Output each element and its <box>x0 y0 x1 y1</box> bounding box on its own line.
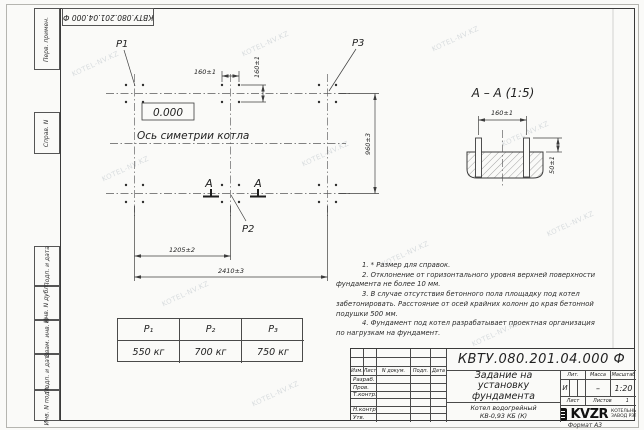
load-table-value: 750 кг <box>242 341 304 363</box>
tb-row-utv: Утв. <box>351 414 377 422</box>
tb-logo-cell: KVZR КОТЕЛЬНЫЙ ЗАВОД РЭП <box>561 406 636 422</box>
load-table: P₁ P₂ P₃ 550 кг 700 кг 750 кг <box>117 318 303 362</box>
tb-row-prov: Пров. <box>351 384 377 392</box>
tb-scale-label: Масштаб <box>611 371 636 380</box>
tb-mass-label: Масса <box>586 371 611 380</box>
section-dim-50: 50±1 <box>548 156 556 174</box>
tb-col-data: Дата <box>431 367 447 376</box>
note-line: подушки 500 мм. <box>336 310 624 320</box>
tb-col-ndoc: N докум. <box>377 367 411 376</box>
section-letter-left: А <box>204 177 213 190</box>
symmetry-axis-label: Ось симетрии котла <box>137 130 249 142</box>
tb-col-list: Лист <box>364 367 377 376</box>
note-line: 4. Фундамент под котел разрабатывает про… <box>336 319 624 329</box>
section-view-title: А – А (1:5) <box>471 86 535 100</box>
tb-sheets-value: 1 <box>626 398 629 404</box>
kvzr-logo-emblem-icon <box>561 408 567 421</box>
tb-scale-value: 1:20 <box>611 380 636 397</box>
note-line: по нагрузкам на фундамент. <box>336 329 624 339</box>
dim-1205: 1205±2 <box>169 246 195 254</box>
dim-960: 960±3 <box>364 133 372 155</box>
load-table-header: P₂ <box>180 319 242 341</box>
tb-sheets-cell: Листов 1 <box>586 397 636 406</box>
tb-row-blank <box>351 399 377 407</box>
title-block: Изм. Лист N докум. Подп. Дата Разраб. Пр… <box>350 348 635 421</box>
section-dimension-lines <box>479 116 563 152</box>
elevation-value: 0.000 <box>153 107 183 119</box>
tb-product-line: Котел водогрейный <box>470 405 536 413</box>
note-line: фундамента не более 10 мм. <box>336 280 624 290</box>
anchor-bolt-left <box>476 138 482 177</box>
load-point-p2-label: P2 <box>242 224 254 235</box>
tb-doc-number: КВТУ.080.201.04.000 Ф <box>447 349 636 371</box>
note-line: забетонировать. Расстояние от осей крайн… <box>336 300 624 310</box>
anchor-bolt-right <box>524 138 530 177</box>
kvzr-logo-subtitle: КОТЕЛЬНЫЙ ЗАВОД РЭП <box>611 409 636 419</box>
tb-row-tkontr: Т.контр. <box>351 392 377 399</box>
tb-drawing-title: Задание на установку фундамента <box>447 371 561 403</box>
load-point-p1-label: P1 <box>116 39 128 50</box>
load-table-value: 550 кг <box>118 341 180 363</box>
load-table-header: P₃ <box>242 319 304 341</box>
note-line: 1. * Размер для справок. <box>336 261 624 271</box>
note-line: 2. Отклонение от горизонтального уровня … <box>336 271 624 281</box>
section-letter-right: А <box>253 177 262 190</box>
tb-title-line: фундамента <box>472 392 535 403</box>
plan-centerlines <box>106 74 350 216</box>
tb-row-nkontr: Н.контр. <box>351 407 377 414</box>
format-label: Формат А3 <box>540 422 630 429</box>
kvzr-logo-text: KVZR <box>570 407 608 422</box>
tb-lit-value: И <box>561 380 570 397</box>
load-table-value: 700 кг <box>180 341 242 363</box>
tb-sheets-label: Листов <box>593 398 612 404</box>
section-dim-160: 160±1 <box>491 109 513 117</box>
tb-lit-label: Лит. <box>561 371 586 380</box>
section-cut-marks <box>203 189 266 197</box>
load-point-p3-label: P3 <box>352 38 364 49</box>
drawing-sheet: KOTEL-NV.KZ KOTEL-NV.KZ KOTEL-NV.KZ KOTE… <box>0 0 644 430</box>
tb-mass-value: – <box>586 380 611 397</box>
load-table-header: P₁ <box>118 319 180 341</box>
dim-160-vertical: 160±1 <box>253 56 261 78</box>
tb-col-izm: Изм. <box>351 367 364 376</box>
technical-notes: 1. * Размер для справок. 2. Отклонение о… <box>336 261 624 339</box>
tb-sheet-label: Лист <box>561 397 586 406</box>
dim-160-horizontal: 160±1 <box>194 68 216 76</box>
tb-row-razrab: Разраб. <box>351 376 377 384</box>
note-line: 3. В случае отсутствия бетонного пола пл… <box>336 290 624 300</box>
tb-product-line: КВ-0,93 КБ (К) <box>480 413 527 421</box>
tb-product-name: Котел водогрейный КВ-0,93 КБ (К) <box>447 403 561 422</box>
tb-col-podp: Подп. <box>411 367 431 376</box>
dim-2410: 2410±3 <box>218 267 244 275</box>
